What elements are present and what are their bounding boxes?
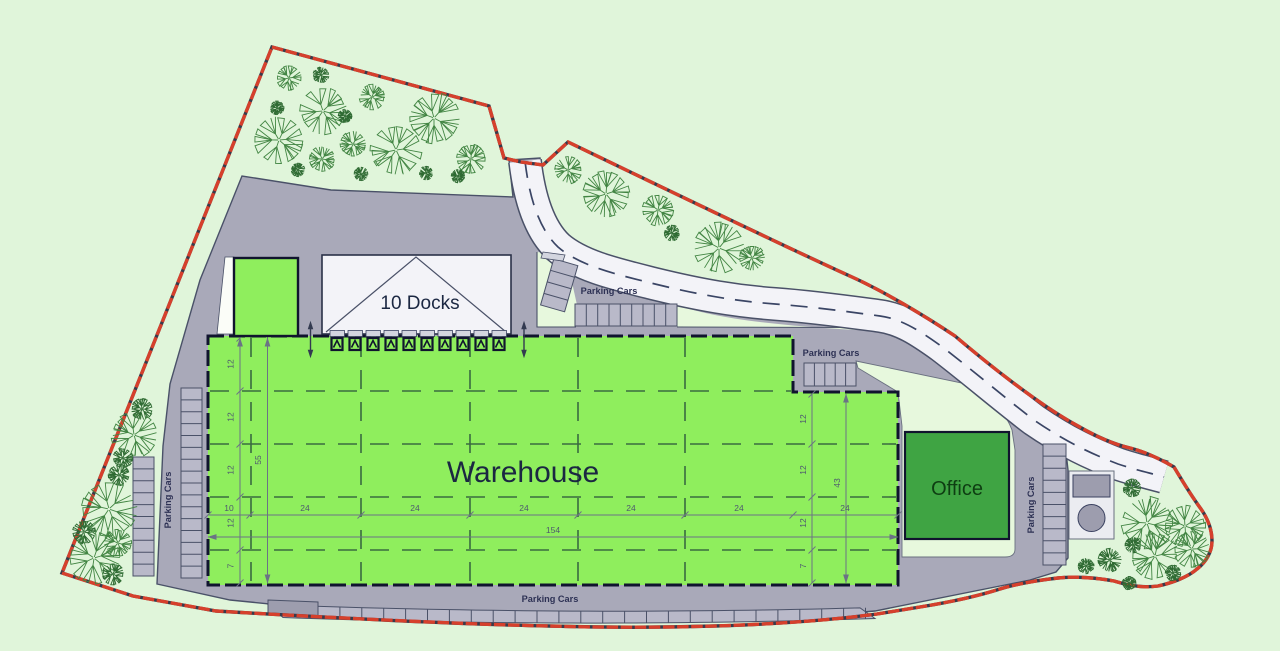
svg-text:Warehouse: Warehouse <box>447 456 599 489</box>
svg-text:Parking Cars: Parking Cars <box>1026 477 1036 534</box>
svg-text:24: 24 <box>519 503 529 513</box>
svg-text:12: 12 <box>226 412 236 422</box>
svg-text:Office: Office <box>931 478 983 500</box>
svg-text:24: 24 <box>840 503 850 513</box>
svg-text:55: 55 <box>253 455 263 465</box>
svg-text:154: 154 <box>546 525 560 535</box>
svg-text:43: 43 <box>832 478 842 488</box>
svg-text:12: 12 <box>226 518 236 528</box>
svg-text:24: 24 <box>410 503 420 513</box>
svg-text:24: 24 <box>626 503 636 513</box>
svg-text:7: 7 <box>798 563 808 568</box>
svg-text:12: 12 <box>798 414 808 424</box>
svg-text:12: 12 <box>798 465 808 475</box>
svg-text:24: 24 <box>300 503 310 513</box>
svg-text:Parking Cars: Parking Cars <box>581 286 638 296</box>
svg-text:24: 24 <box>734 503 744 513</box>
svg-text:7: 7 <box>226 563 236 568</box>
svg-text:Parking Cars: Parking Cars <box>803 348 860 358</box>
svg-text:10: 10 <box>224 503 234 513</box>
svg-text:12: 12 <box>226 465 236 475</box>
svg-text:Parking Cars: Parking Cars <box>522 594 579 604</box>
svg-text:10 Docks: 10 Docks <box>380 293 459 314</box>
svg-text:12: 12 <box>226 359 236 369</box>
svg-text:Parking Cars: Parking Cars <box>163 472 173 529</box>
svg-text:12: 12 <box>798 518 808 528</box>
